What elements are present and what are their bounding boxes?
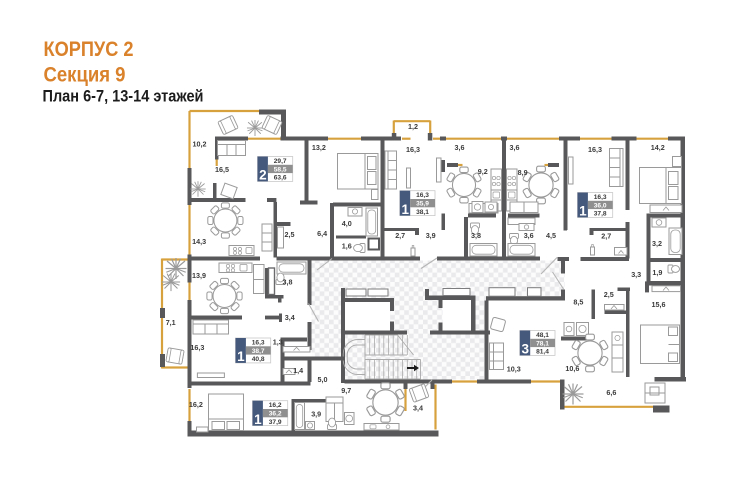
svg-text:4,5: 4,5	[546, 231, 556, 240]
svg-text:5,0: 5,0	[318, 375, 328, 384]
svg-text:48,1: 48,1	[536, 332, 549, 339]
svg-text:16,2: 16,2	[189, 400, 203, 409]
svg-text:3,6: 3,6	[524, 231, 534, 240]
svg-text:14,3: 14,3	[192, 237, 206, 246]
svg-text:2,5: 2,5	[604, 290, 614, 299]
svg-text:10,6: 10,6	[565, 364, 579, 373]
svg-text:81,4: 81,4	[536, 349, 549, 356]
svg-text:3,8: 3,8	[471, 231, 481, 240]
svg-text:1: 1	[579, 204, 587, 219]
svg-text:3,8: 3,8	[283, 278, 293, 287]
svg-text:36,0: 36,0	[594, 202, 607, 209]
svg-text:1,2: 1,2	[408, 122, 418, 131]
svg-text:16,3: 16,3	[416, 192, 429, 199]
svg-text:План 6-7, 13-14 этажей: План 6-7, 13-14 этажей	[43, 87, 204, 106]
svg-text:3,6: 3,6	[510, 143, 520, 152]
svg-text:35,9: 35,9	[416, 201, 429, 208]
svg-text:10,2: 10,2	[193, 140, 207, 149]
svg-text:1,6: 1,6	[342, 242, 352, 251]
svg-text:10,3: 10,3	[507, 365, 521, 374]
svg-text:37,8: 37,8	[594, 211, 607, 218]
svg-text:16,3: 16,3	[594, 194, 607, 201]
svg-text:1: 1	[237, 349, 245, 364]
svg-text:7,1: 7,1	[166, 318, 176, 327]
svg-text:3,2: 3,2	[652, 239, 662, 248]
svg-text:3,3: 3,3	[631, 270, 641, 279]
svg-text:1,3: 1,3	[273, 338, 283, 347]
svg-text:78,1: 78,1	[536, 340, 549, 347]
svg-text:2: 2	[259, 168, 267, 183]
svg-text:1,9: 1,9	[652, 268, 662, 277]
svg-text:16,3: 16,3	[252, 340, 265, 347]
svg-text:8,5: 8,5	[573, 298, 583, 307]
svg-text:16,3: 16,3	[190, 343, 204, 352]
svg-text:37,9: 37,9	[269, 419, 282, 426]
svg-text:3,4: 3,4	[285, 313, 295, 322]
svg-text:16,2: 16,2	[269, 402, 282, 409]
svg-text:16,3: 16,3	[588, 145, 602, 154]
svg-text:3,4: 3,4	[413, 404, 423, 413]
svg-text:3,6: 3,6	[455, 143, 465, 152]
svg-text:КОРПУС 2: КОРПУС 2	[44, 38, 134, 61]
svg-text:13,9: 13,9	[192, 271, 206, 280]
svg-text:63,6: 63,6	[274, 175, 287, 182]
svg-text:1,4: 1,4	[293, 366, 303, 375]
svg-text:1: 1	[254, 412, 262, 427]
svg-text:16,3: 16,3	[406, 145, 420, 154]
svg-text:1: 1	[401, 202, 409, 217]
svg-text:15,6: 15,6	[652, 300, 666, 309]
svg-text:9,2: 9,2	[478, 167, 488, 176]
svg-text:2,7: 2,7	[601, 232, 611, 241]
svg-text:3: 3	[521, 342, 529, 357]
svg-text:16,5: 16,5	[215, 165, 229, 174]
svg-text:58,5: 58,5	[274, 166, 287, 173]
svg-text:14,2: 14,2	[651, 143, 665, 152]
svg-text:2,7: 2,7	[395, 231, 405, 240]
svg-text:3,9: 3,9	[311, 409, 321, 418]
svg-text:13,2: 13,2	[312, 143, 326, 152]
svg-text:Секция 9: Секция 9	[44, 64, 126, 87]
svg-text:8,9: 8,9	[518, 168, 528, 177]
svg-text:38,1: 38,1	[416, 209, 429, 216]
svg-text:6,6: 6,6	[606, 388, 616, 397]
svg-text:4,0: 4,0	[342, 219, 352, 228]
svg-text:9,7: 9,7	[341, 386, 351, 395]
svg-text:2,5: 2,5	[285, 230, 295, 239]
svg-text:3,9: 3,9	[426, 231, 436, 240]
svg-text:6,4: 6,4	[317, 229, 327, 238]
svg-text:38,7: 38,7	[252, 348, 265, 355]
svg-text:29,7: 29,7	[274, 158, 287, 165]
svg-text:36,2: 36,2	[269, 411, 282, 418]
svg-text:40,8: 40,8	[252, 356, 265, 363]
